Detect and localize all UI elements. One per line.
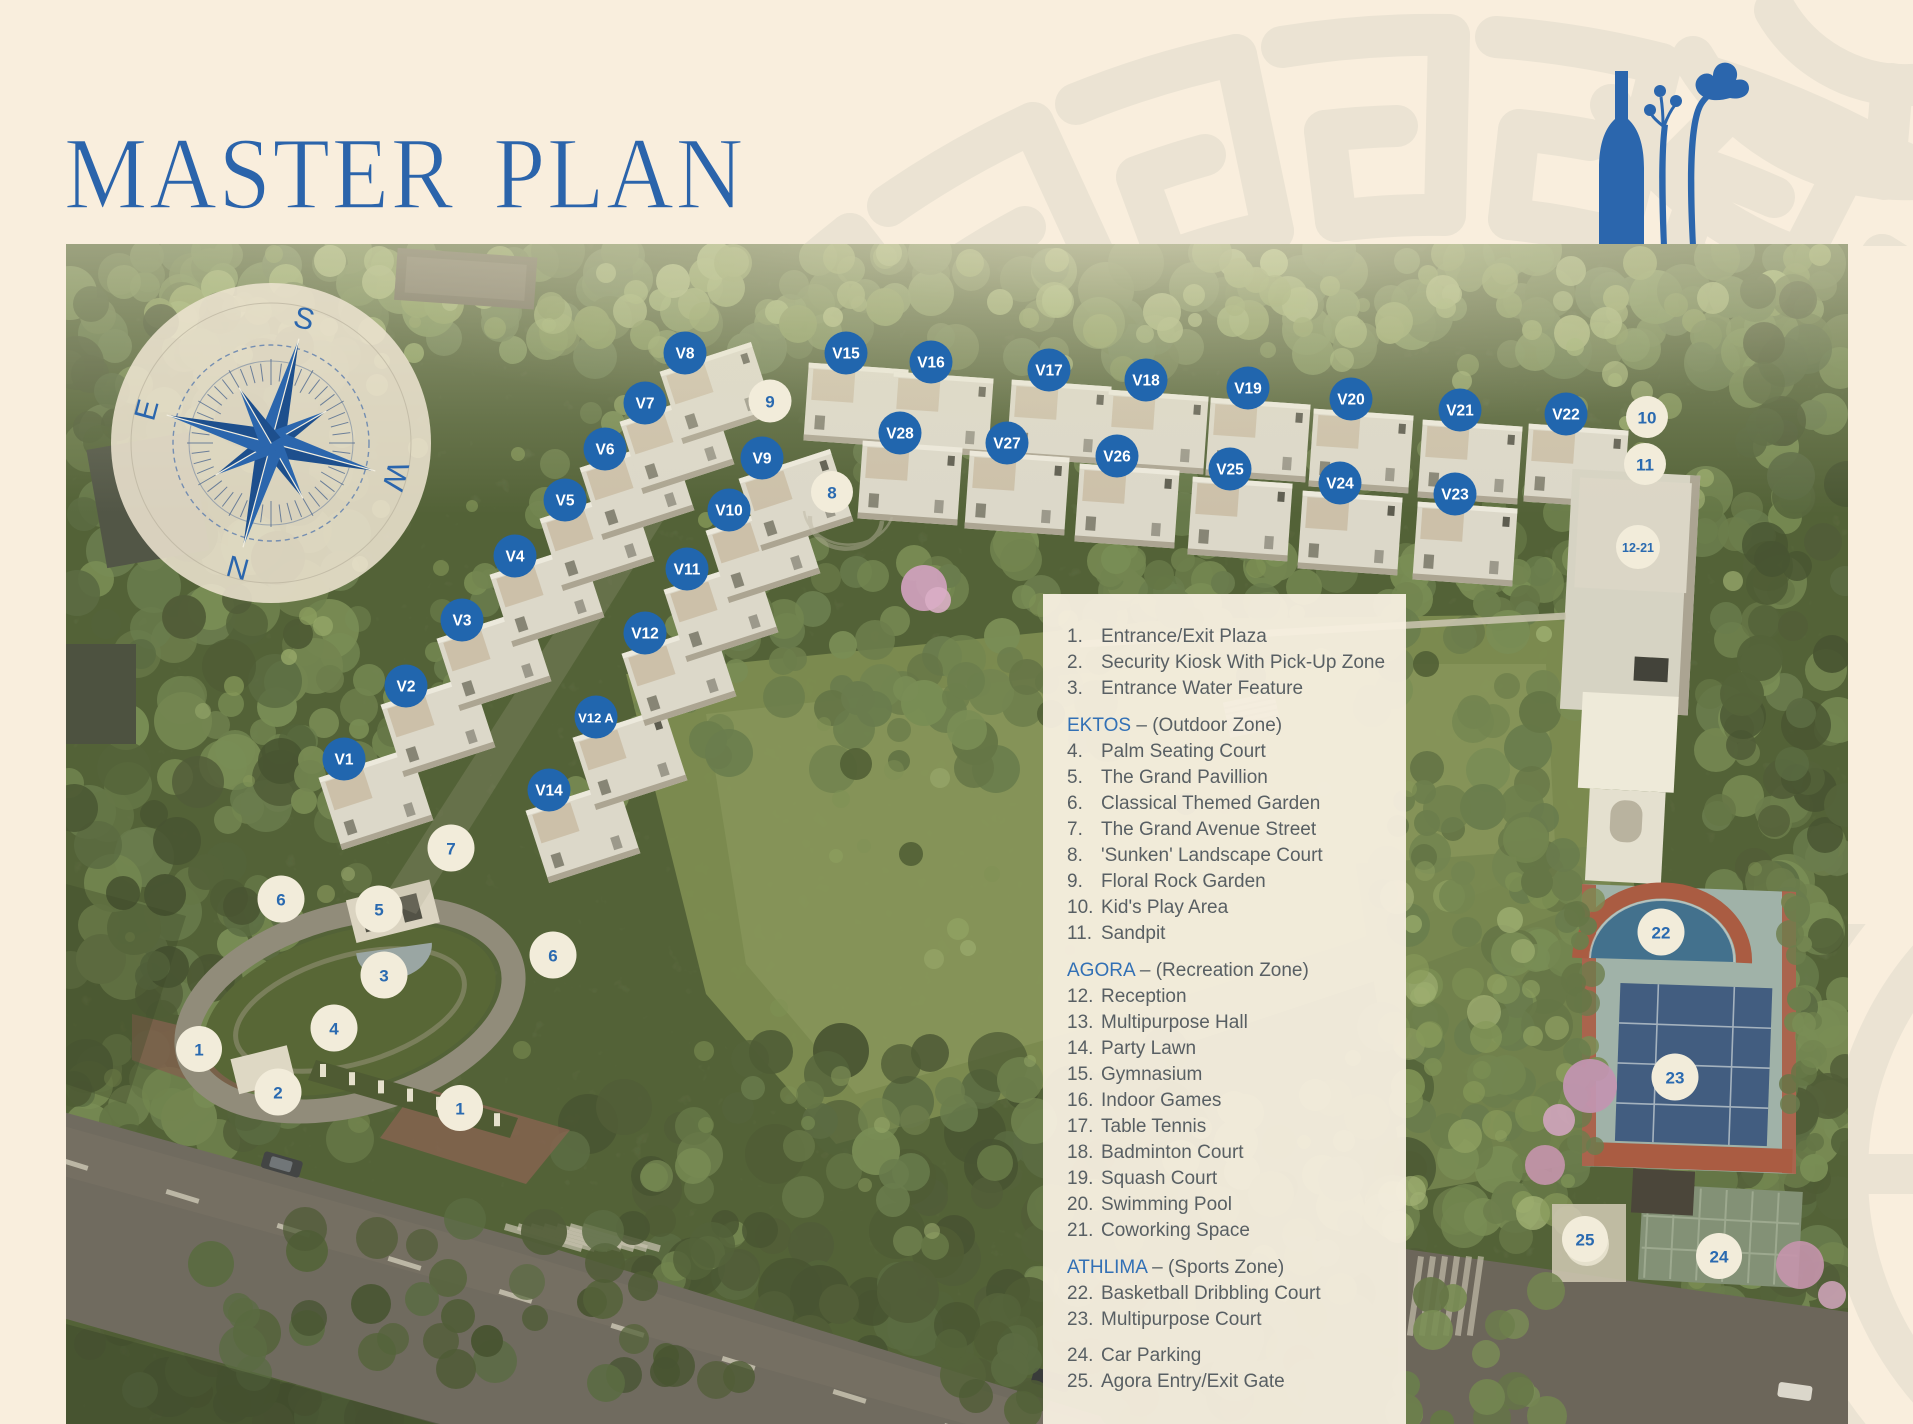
svg-text:6: 6: [548, 947, 557, 966]
svg-text:12-21: 12-21: [1622, 541, 1654, 555]
svg-text:V27: V27: [993, 436, 1021, 453]
svg-text:V17: V17: [1035, 363, 1063, 380]
svg-text:V7: V7: [636, 396, 655, 413]
svg-text:V22: V22: [1552, 407, 1580, 424]
svg-text:V23: V23: [1441, 487, 1469, 504]
svg-text:V2: V2: [397, 679, 416, 696]
svg-text:V10: V10: [715, 503, 743, 520]
svg-text:V25: V25: [1216, 462, 1244, 479]
svg-text:V14: V14: [535, 783, 563, 800]
svg-text:V6: V6: [596, 442, 615, 459]
svg-text:V12: V12: [631, 626, 659, 643]
svg-text:V21: V21: [1446, 403, 1474, 420]
svg-text:V9: V9: [753, 451, 772, 468]
svg-text:4: 4: [329, 1020, 339, 1039]
svg-text:3: 3: [379, 967, 388, 986]
svg-text:V18: V18: [1132, 373, 1160, 390]
svg-text:V5: V5: [556, 493, 575, 510]
svg-text:V8: V8: [676, 346, 695, 363]
svg-text:V3: V3: [453, 613, 472, 630]
svg-text:10: 10: [1638, 409, 1657, 428]
svg-text:5: 5: [374, 901, 383, 920]
svg-text:22: 22: [1652, 924, 1671, 943]
svg-text:V16: V16: [917, 355, 945, 372]
svg-text:V4: V4: [506, 549, 525, 566]
svg-text:8: 8: [827, 484, 836, 503]
svg-text:V12 A: V12 A: [578, 711, 614, 726]
svg-text:V11: V11: [674, 562, 701, 579]
svg-text:23: 23: [1666, 1069, 1685, 1088]
svg-text:7: 7: [446, 840, 455, 859]
svg-text:24: 24: [1710, 1248, 1729, 1267]
svg-text:1: 1: [455, 1100, 464, 1119]
svg-text:6: 6: [276, 891, 285, 910]
svg-text:V26: V26: [1103, 449, 1131, 466]
svg-text:V1: V1: [335, 752, 354, 769]
svg-text:V20: V20: [1337, 392, 1365, 409]
svg-text:V28: V28: [886, 426, 914, 443]
svg-text:25: 25: [1576, 1231, 1595, 1250]
svg-text:V19: V19: [1234, 381, 1262, 398]
svg-text:1: 1: [194, 1041, 203, 1060]
svg-text:9: 9: [765, 393, 774, 412]
svg-text:11: 11: [1636, 456, 1654, 475]
svg-text:2: 2: [273, 1084, 282, 1103]
svg-text:V15: V15: [832, 346, 860, 363]
svg-text:V24: V24: [1326, 476, 1354, 493]
